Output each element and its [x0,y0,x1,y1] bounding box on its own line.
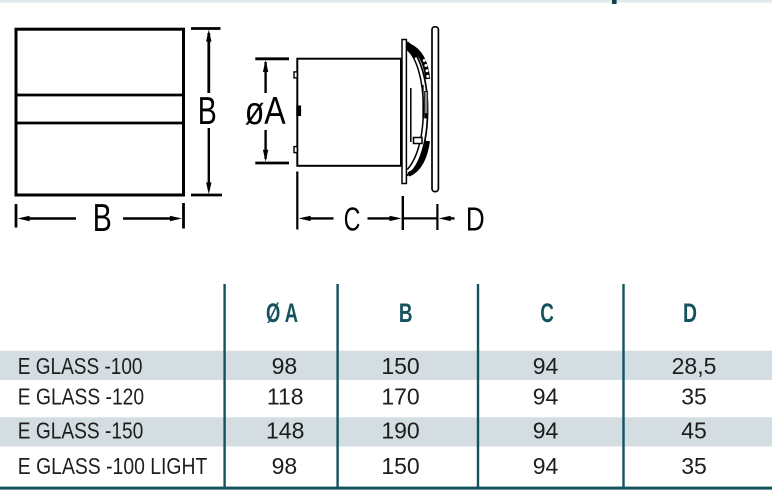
svg-text:E GLASS -100 LIGHT: E GLASS -100 LIGHT [18,453,208,479]
svg-text:28,5: 28,5 [672,353,717,379]
svg-text:Ø A: Ø A [266,298,298,328]
svg-text:148: 148 [266,417,304,443]
svg-text:150: 150 [381,453,419,479]
svg-text:150: 150 [381,353,419,379]
svg-text:E GLASS -150: E GLASS -150 [18,417,144,443]
svg-text:94: 94 [533,384,559,410]
svg-text:170: 170 [381,384,419,410]
svg-text:190: 190 [381,417,419,443]
svg-text:118: 118 [267,384,304,410]
svg-text:D: D [683,298,697,328]
svg-text:B: B [93,197,112,240]
svg-text:94: 94 [533,417,559,443]
svg-text:B: B [198,90,217,133]
svg-text:98: 98 [272,353,298,379]
svg-text:D: D [466,200,485,237]
svg-text:E GLASS -100: E GLASS -100 [18,353,143,379]
svg-text:35: 35 [681,384,707,410]
svg-text:øA: øA [245,90,286,133]
svg-text:C: C [344,200,361,237]
svg-text:B: B [399,298,413,328]
svg-text:98: 98 [272,453,298,479]
svg-text:94: 94 [533,453,559,479]
svg-text:94: 94 [533,353,559,379]
svg-text:35: 35 [681,453,707,479]
svg-text:E GLASS -120: E GLASS -120 [18,384,144,410]
svg-text:45: 45 [681,417,707,443]
svg-text:C: C [540,298,554,328]
